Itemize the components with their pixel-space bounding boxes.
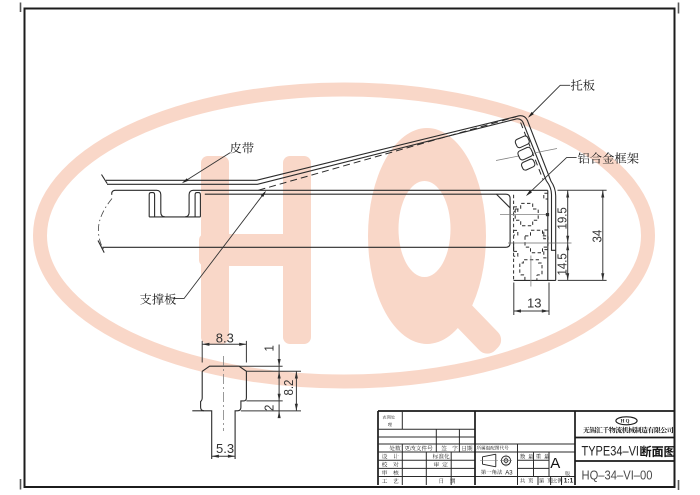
svg-text:5.3: 5.3 <box>216 441 234 456</box>
svg-text:19.5: 19.5 <box>555 207 570 229</box>
svg-text:A: A <box>550 455 560 472</box>
svg-text:TYPE34–VI: TYPE34–VI <box>582 444 640 459</box>
svg-text:H Q: H Q <box>621 420 630 425</box>
svg-text:HQ–34–VI–00: HQ–34–VI–00 <box>582 468 653 482</box>
svg-text:13: 13 <box>527 296 541 311</box>
svg-text:1:1: 1:1 <box>564 478 574 485</box>
svg-text:A3: A3 <box>505 470 513 476</box>
svg-text:8.3: 8.3 <box>216 331 234 346</box>
svg-text:1: 1 <box>262 345 277 352</box>
svg-text:14.5: 14.5 <box>555 253 570 275</box>
svg-text:8.2: 8.2 <box>282 379 297 395</box>
svg-text:34: 34 <box>590 230 605 243</box>
svg-text:2: 2 <box>262 404 277 411</box>
